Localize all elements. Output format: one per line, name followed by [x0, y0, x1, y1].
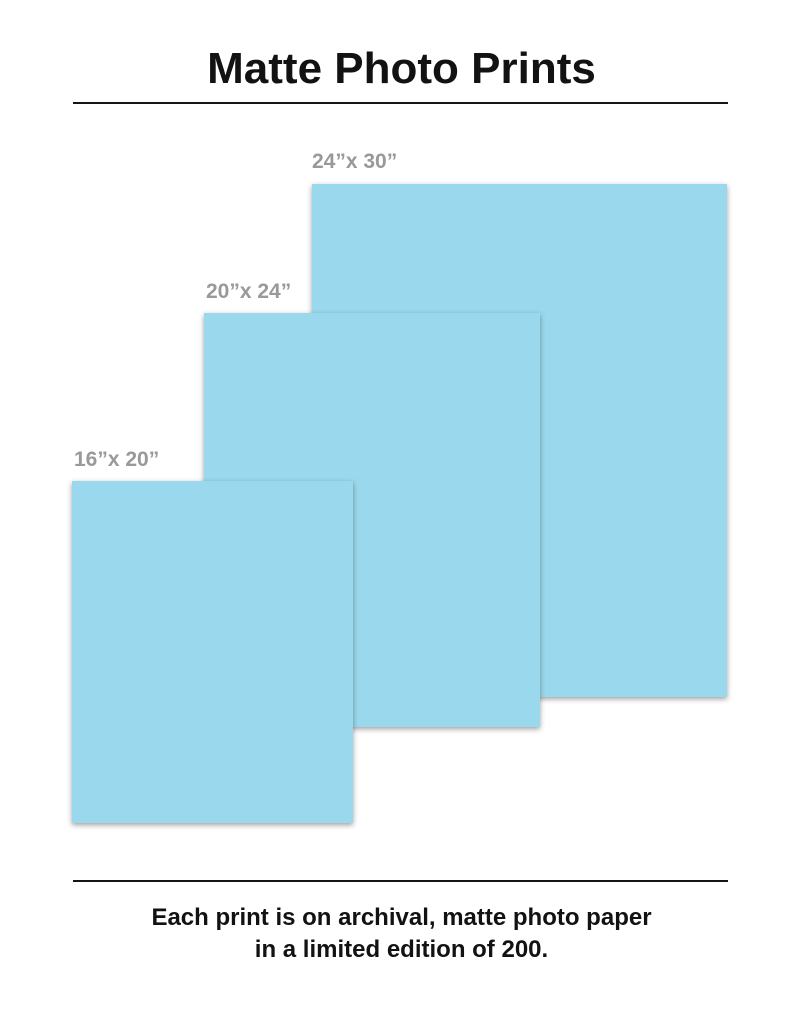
caption-line-2: in a limited edition of 200. [0, 934, 803, 966]
print-size-label-20x24: 20”x 24” [206, 280, 291, 304]
print-size-label-16x20: 16”x 20” [74, 448, 159, 472]
print-size-label-24x30: 24”x 30” [312, 150, 397, 174]
infographic-page: Matte Photo Prints 24”x 30” 20”x 24” 16”… [0, 0, 803, 1026]
bottom-divider-rule [73, 880, 728, 882]
caption: Each print is on archival, matte photo p… [0, 902, 803, 966]
print-swatch-16x20 [72, 481, 353, 823]
caption-line-1: Each print is on archival, matte photo p… [0, 902, 803, 934]
page-title: Matte Photo Prints [0, 44, 803, 94]
top-divider-rule [73, 102, 728, 104]
